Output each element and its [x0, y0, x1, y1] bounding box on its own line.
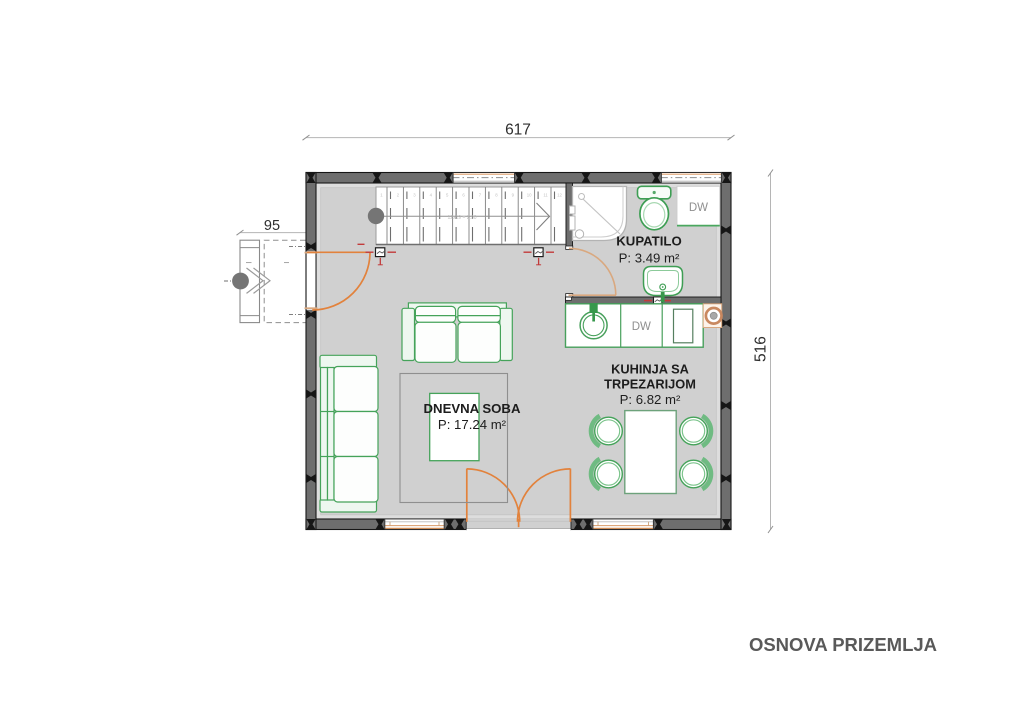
svg-text:DW: DW	[632, 321, 651, 333]
svg-text:617: 617	[505, 122, 531, 139]
svg-text:516: 516	[753, 336, 770, 362]
svg-text:12x19 = 2.90: 12x19 = 2.90	[447, 215, 476, 221]
svg-text:11: 11	[543, 193, 548, 198]
svg-text:TRPEZARIJOM: TRPEZARIJOM	[604, 377, 696, 392]
svg-text:P: 6.82 m²: P: 6.82 m²	[620, 392, 681, 407]
svg-text:DNEVNA SOBA: DNEVNA SOBA	[424, 401, 521, 416]
svg-text:KUHINJA SA: KUHINJA SA	[611, 362, 689, 377]
svg-text:P: 17.24 m²: P: 17.24 m²	[438, 417, 507, 432]
svg-text:95: 95	[264, 218, 280, 234]
svg-text:12: 12	[557, 193, 562, 198]
svg-text:KUPATILO: KUPATILO	[616, 234, 681, 249]
svg-text:OSNOVA PRIZEMLJA: OSNOVA PRIZEMLJA	[749, 634, 937, 655]
svg-text:DW: DW	[689, 202, 708, 214]
svg-text:P: 3.49 m²: P: 3.49 m²	[619, 251, 680, 266]
svg-text:10: 10	[527, 193, 532, 198]
